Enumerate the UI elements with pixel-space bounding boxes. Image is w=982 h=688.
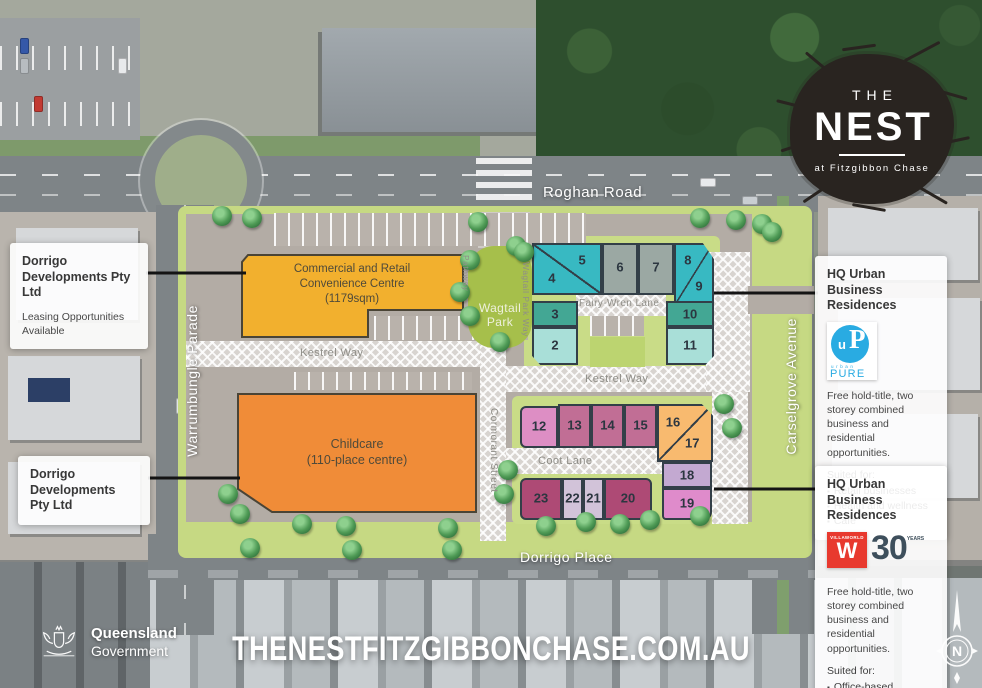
panel-dorrigo-top: Dorrigo Developments Pty Ltd Leasing Opp… xyxy=(10,243,148,349)
tree-icon xyxy=(438,518,458,538)
car xyxy=(20,58,29,74)
tree-icon xyxy=(240,538,260,558)
warrumbungle-parade-label: Warrumbungle Parade xyxy=(184,305,200,457)
tree-icon xyxy=(218,484,238,504)
lot-15: 15 xyxy=(624,404,657,448)
lot-6: 6 xyxy=(602,243,638,295)
tree-icon xyxy=(230,504,250,524)
car xyxy=(20,38,29,54)
lot-number: 16 xyxy=(666,415,680,430)
panel-title: Dorrigo Developments Pty Ltd xyxy=(30,467,138,514)
panel-title: HQ Urban Business Residences xyxy=(827,477,935,524)
parking-childcare xyxy=(294,372,472,390)
wagtail-park-way-label: Wagtail Park Way xyxy=(521,262,531,337)
lot-number: 6 xyxy=(616,259,623,274)
tree-icon xyxy=(342,540,362,560)
solar-panels xyxy=(28,378,70,402)
pathway-label: Pathway xyxy=(461,255,471,291)
tree-icon xyxy=(490,332,510,352)
the-nest-logo: THE NEST at Fitzgibbon Chase xyxy=(782,44,962,216)
tree-icon xyxy=(762,222,782,242)
car xyxy=(700,178,716,187)
site-plan-poster: Wagtail Park Commercial and Retail Conve… xyxy=(0,0,982,688)
queensland-government-crest xyxy=(36,620,82,664)
tree-icon xyxy=(714,394,734,414)
green-square xyxy=(590,337,645,367)
lot-number: 8 xyxy=(684,253,691,268)
queensland-government-logo: Queensland Government xyxy=(36,620,177,664)
tree-icon xyxy=(498,460,518,480)
brand-divider xyxy=(839,154,905,156)
government-line1: Queensland xyxy=(91,625,177,642)
lot-16-17: 16 17 xyxy=(657,404,713,462)
car xyxy=(118,58,127,74)
tree-icon xyxy=(536,516,556,536)
lot-number: 5 xyxy=(579,253,586,268)
carselgrove-avenue-label: Carselgrove Avenue xyxy=(783,318,799,455)
lot-number: 15 xyxy=(633,417,647,432)
commercial-centre-label: Commercial and Retail Convenience Centre… xyxy=(252,262,452,307)
tree-icon xyxy=(690,208,710,228)
parking-fairywren xyxy=(590,316,644,336)
website-url: THENESTFITZGIBBONCHASE.COM.AU xyxy=(98,630,884,669)
tree-icon xyxy=(468,212,488,232)
tree-icon xyxy=(514,242,534,262)
brand-nest: NEST xyxy=(814,105,933,150)
dorrigo-place-label: Dorrigo Place xyxy=(520,549,613,565)
lot-number: 14 xyxy=(600,417,614,432)
tree-icon xyxy=(212,206,232,226)
kestrel-way-label-2: Kestrel Way xyxy=(585,373,648,385)
tree-icon xyxy=(242,208,262,228)
lot-number: 3 xyxy=(551,307,558,322)
tree-icon xyxy=(726,210,746,230)
lot-13: 13 xyxy=(558,404,591,448)
villaworld-30-years-logo: VILLAWORLD W 30 YEARS xyxy=(827,532,935,576)
lot-14: 14 xyxy=(591,404,624,448)
lot-7: 7 xyxy=(638,243,674,295)
north-compass: N xyxy=(934,588,980,688)
lot-8-9: 8 9 xyxy=(674,243,714,305)
lot-number: 20 xyxy=(621,491,635,506)
parking-north xyxy=(274,213,586,246)
tree-icon xyxy=(292,514,312,534)
lot-number: 4 xyxy=(548,270,555,285)
pedestrian-crossing xyxy=(476,158,532,210)
cormorant-street-label: Cormorant Street xyxy=(488,408,499,493)
panel-title: Dorrigo Developments Pty Ltd xyxy=(22,254,136,301)
tree-icon xyxy=(640,510,660,530)
urban-pure-logo: u P urban PURE xyxy=(827,322,877,380)
kestrel-way-label-1: Kestrel Way xyxy=(300,347,363,359)
lot-12: 12 xyxy=(520,406,558,448)
panel-dorrigo-bottom: Dorrigo Developments Pty Ltd xyxy=(18,456,150,525)
coot-lane-label: Coot Lane xyxy=(538,455,592,467)
lot-number: 17 xyxy=(685,435,699,450)
lot-2: 2 xyxy=(532,327,578,365)
lot-18: 18 xyxy=(662,462,712,488)
lot-number: 22 xyxy=(565,491,579,506)
lot-number: 12 xyxy=(532,419,546,434)
bullet-item: ▪Office-based businesses xyxy=(827,680,935,688)
tree-icon xyxy=(336,516,356,536)
fairy-wren-lane-label: Fairy-Wren Lane xyxy=(579,298,659,309)
lot-4-5: 5 4 xyxy=(532,243,602,295)
childcare-label: Childcare (110-place centre) xyxy=(257,436,457,469)
tree-icon xyxy=(576,512,596,532)
lot-number: 2 xyxy=(551,338,558,353)
lot-number: 23 xyxy=(534,491,548,506)
tree-icon xyxy=(460,306,480,326)
compass-n: N xyxy=(952,643,962,659)
tree-icon xyxy=(722,418,742,438)
lot-number: 11 xyxy=(683,338,697,353)
tree-icon xyxy=(610,514,630,534)
car xyxy=(742,196,758,205)
roghan-road-label: Roghan Road xyxy=(543,184,642,201)
panel-body: Leasing Opportunities Available xyxy=(22,310,136,338)
compass-needle xyxy=(953,590,961,632)
government-line2: Government xyxy=(91,643,177,659)
lot-number: 7 xyxy=(652,259,659,274)
suited-list: ▪Office-based businesses ▪Professional s… xyxy=(827,680,935,688)
lot-11: 11 xyxy=(666,327,714,365)
lot-number: 13 xyxy=(567,417,581,432)
carpark-aerial xyxy=(0,18,140,140)
tree-icon xyxy=(690,506,710,526)
lot-23: 23 xyxy=(520,478,562,520)
car xyxy=(34,96,43,112)
brand-the: THE xyxy=(852,87,898,103)
panel-title: HQ Urban Business Residences xyxy=(827,267,935,314)
lot-number: 21 xyxy=(586,491,600,506)
carselgrove-entry xyxy=(748,286,814,314)
tree-icon xyxy=(442,540,462,560)
lot-number: 9 xyxy=(695,278,702,293)
building-roof xyxy=(322,28,540,132)
lot-10: 10 xyxy=(666,301,714,327)
panel-body: Free hold-title, two storey combined bus… xyxy=(827,389,935,460)
villaworld-mark: VILLAWORLD W xyxy=(827,532,867,568)
lot-3: 3 xyxy=(532,301,578,327)
lot-number: 10 xyxy=(683,307,697,322)
lot-number: 18 xyxy=(680,468,694,483)
brand-tagline: at Fitzgibbon Chase xyxy=(815,163,930,174)
